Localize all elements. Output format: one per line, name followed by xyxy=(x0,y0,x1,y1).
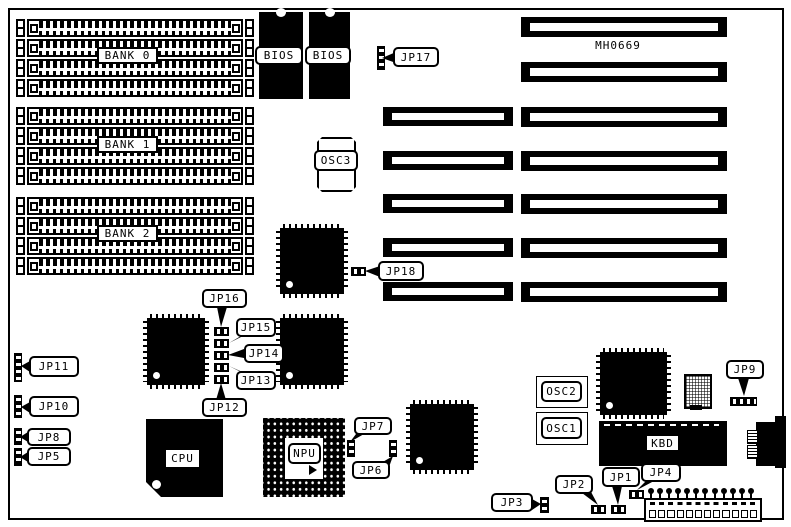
jumper-label-jp14: JP14 xyxy=(244,344,284,363)
jumper-label-jp10: JP10 xyxy=(29,396,79,417)
jumper-label-jp18: JP18 xyxy=(378,261,424,281)
jumper-label-jp15: JP15 xyxy=(236,318,276,337)
jumper-label-jp2: JP2 xyxy=(555,475,593,494)
jumper-label-jp17: JP17 xyxy=(393,47,439,67)
board-model: MH0669 xyxy=(588,38,648,52)
jumper-label-jp6: JP6 xyxy=(352,461,390,479)
jumper-label-jp9: JP9 xyxy=(726,360,764,379)
jumper-label-jp12: JP12 xyxy=(202,398,247,417)
bios-label: BIOS xyxy=(305,46,351,65)
jumper-label-jp7: JP7 xyxy=(354,417,392,435)
cpu-label: CPU xyxy=(165,449,200,468)
jumper-label-jp8: JP8 xyxy=(27,428,71,446)
jumper-label-jp16: JP16 xyxy=(202,289,247,308)
osc2-label: OSC2 xyxy=(541,381,582,402)
jumper-label-jp1: JP1 xyxy=(602,467,640,487)
jumper-label-jp11: JP11 xyxy=(29,356,79,377)
osc3-label: OSC3 xyxy=(314,150,358,171)
jumper-label-jp5: JP5 xyxy=(27,447,71,466)
jumper-label-jp3: JP3 xyxy=(491,493,533,512)
jumper-label-jp13: JP13 xyxy=(236,371,276,390)
npu-label: NPU xyxy=(288,443,321,464)
jumper-label-jp4: JP4 xyxy=(641,463,681,482)
bios-label: BIOS xyxy=(255,46,303,65)
kbd-label: KBD xyxy=(645,434,680,452)
osc1-label: OSC1 xyxy=(541,417,582,439)
motherboard-diagram: BANK 0 BANK 1 BANK 2 xyxy=(0,0,791,527)
